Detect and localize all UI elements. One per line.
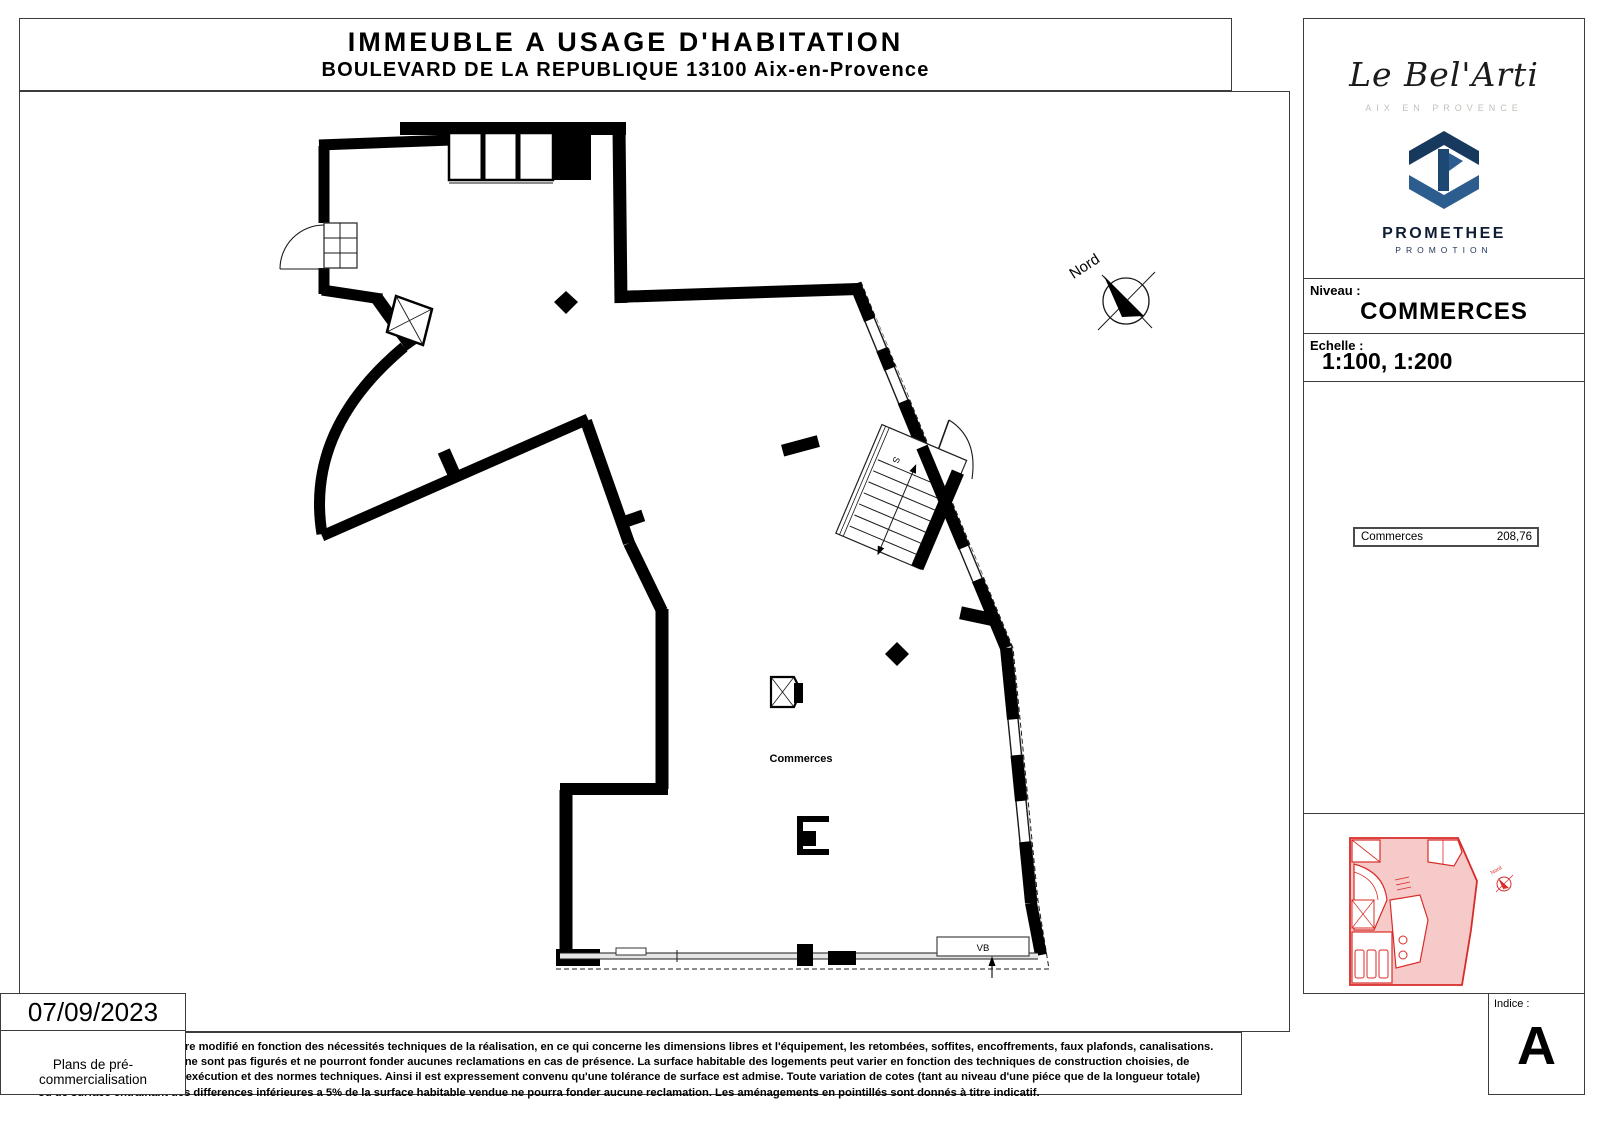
disclaimer: Ce plan est susceptible d'etre modifié e…: [19, 1032, 1242, 1095]
echelle-cell: Echelle : 1:100, 1:200: [1303, 333, 1585, 382]
logo-panel: Le Bel'Arti AIX EN PROVENCE PROMETHEE PR…: [1303, 18, 1585, 279]
brand-subtitle: AIX EN PROVENCE: [1304, 103, 1584, 113]
promoter-subtitle: PROMOTION: [1304, 245, 1584, 255]
title-block: IMMEUBLE A USAGE D'HABITATION BOULEVARD …: [19, 18, 1232, 91]
doc-type-cell: Plans de pré-commercialisation: [0, 1030, 186, 1095]
disclaimer-line: Radiateurs ou convecteurs ne sont pas fi…: [38, 1055, 1241, 1070]
sheet-date: 07/09/2023: [1, 994, 185, 1030]
surface-row-value: 208,76: [1497, 531, 1537, 543]
mini-plan-panel: [1303, 813, 1585, 994]
disclaimer-line: ou de surface entrainant des differences…: [38, 1086, 1241, 1101]
niveau-value: COMMERCES: [1304, 298, 1584, 326]
surface-panel: Commerces 208,76: [1303, 381, 1585, 814]
niveau-label: Niveau :: [1310, 283, 1361, 298]
date-cell: 07/09/2023: [0, 993, 186, 1031]
indice-value: A: [1489, 1015, 1584, 1077]
surface-table: Commerces 208,76: [1353, 527, 1539, 547]
plan-frame: [19, 91, 1290, 1032]
sheet-title: IMMEUBLE A USAGE D'HABITATION: [20, 27, 1231, 58]
disclaimer-line: Ce plan est susceptible d'etre modifié e…: [38, 1040, 1241, 1055]
surface-row-label: Commerces: [1355, 531, 1497, 543]
indice-cell: Indice : A: [1488, 993, 1585, 1095]
niveau-cell: Niveau : COMMERCES: [1303, 278, 1585, 334]
disclaimer-line: l'établissement des plans d'exécution et…: [38, 1070, 1241, 1085]
promoter-name: PROMETHEE: [1304, 225, 1584, 243]
doc-type: Plans de pré-commercialisation: [1, 1057, 185, 1087]
plan-sheet: { "title_block": { "line1": "IMMEUBLE A …: [0, 0, 1600, 1131]
promethee-hexagon-icon: [1401, 125, 1487, 213]
brand-logo: Le Bel'Arti: [1304, 55, 1584, 94]
indice-label: Indice :: [1494, 998, 1529, 1010]
sheet-address: BOULEVARD DE LA REPUBLIQUE 13100 Aix-en-…: [20, 59, 1231, 82]
echelle-label: Echelle :: [1310, 338, 1363, 353]
